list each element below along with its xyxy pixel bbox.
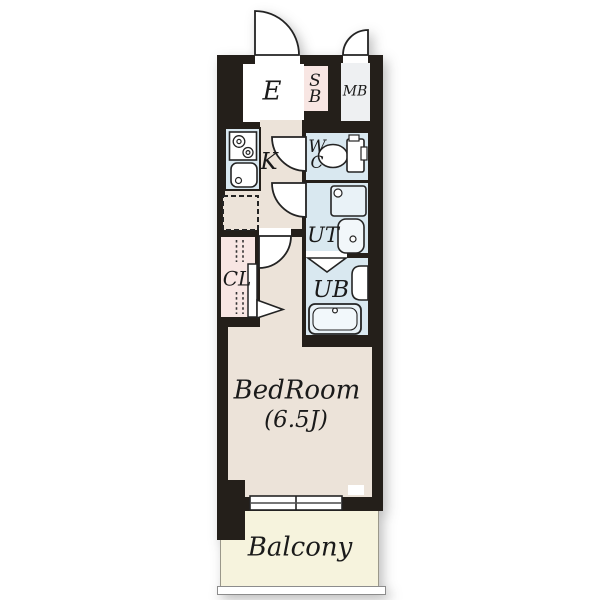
floor-plan-canvas: E S B MB K W C UT UB CL BedRoom (6.5J) B… [0, 0, 600, 600]
label-shoe-box: S B [309, 73, 322, 105]
washer-drain [334, 189, 342, 197]
entrance-door-arc [255, 11, 299, 55]
bedroom-door-arc [259, 236, 291, 268]
label-meter-box: MB [343, 85, 368, 98]
label-closet: CL [223, 270, 252, 289]
closet-door-arrow [257, 300, 283, 318]
toilet-lid-icon [349, 135, 359, 141]
sink-drain [236, 178, 242, 184]
fixtures-layer [0, 0, 600, 600]
refrigerator-space [223, 196, 258, 230]
label-bedroom-size: (6.5J) [264, 410, 328, 432]
label-kitchen: K [260, 152, 277, 174]
bath-door-triangle [308, 258, 346, 272]
label-unit-bath: UB [313, 280, 349, 302]
burner-dot [246, 151, 250, 155]
burner-dot [237, 139, 241, 143]
label-balcony: Balcony [248, 536, 353, 561]
meter-box-door-arc [343, 30, 368, 55]
floor-plan: E S B MB K W C UT UB CL BedRoom (6.5J) B… [0, 0, 600, 600]
label-water-closet: W C [308, 139, 325, 171]
label-entrance: E [263, 80, 282, 105]
label-utility: UT [307, 226, 339, 246]
utility-door-arc [272, 183, 306, 217]
bath-basin-icon [352, 266, 368, 300]
kitchen-sink-icon [231, 163, 257, 187]
washbasin-icon [338, 219, 364, 253]
toilet-handle-icon [361, 147, 367, 160]
washbasin-drain [350, 236, 356, 242]
label-bedroom: BedRoom [234, 379, 361, 404]
bathtub-faucet [333, 308, 338, 313]
